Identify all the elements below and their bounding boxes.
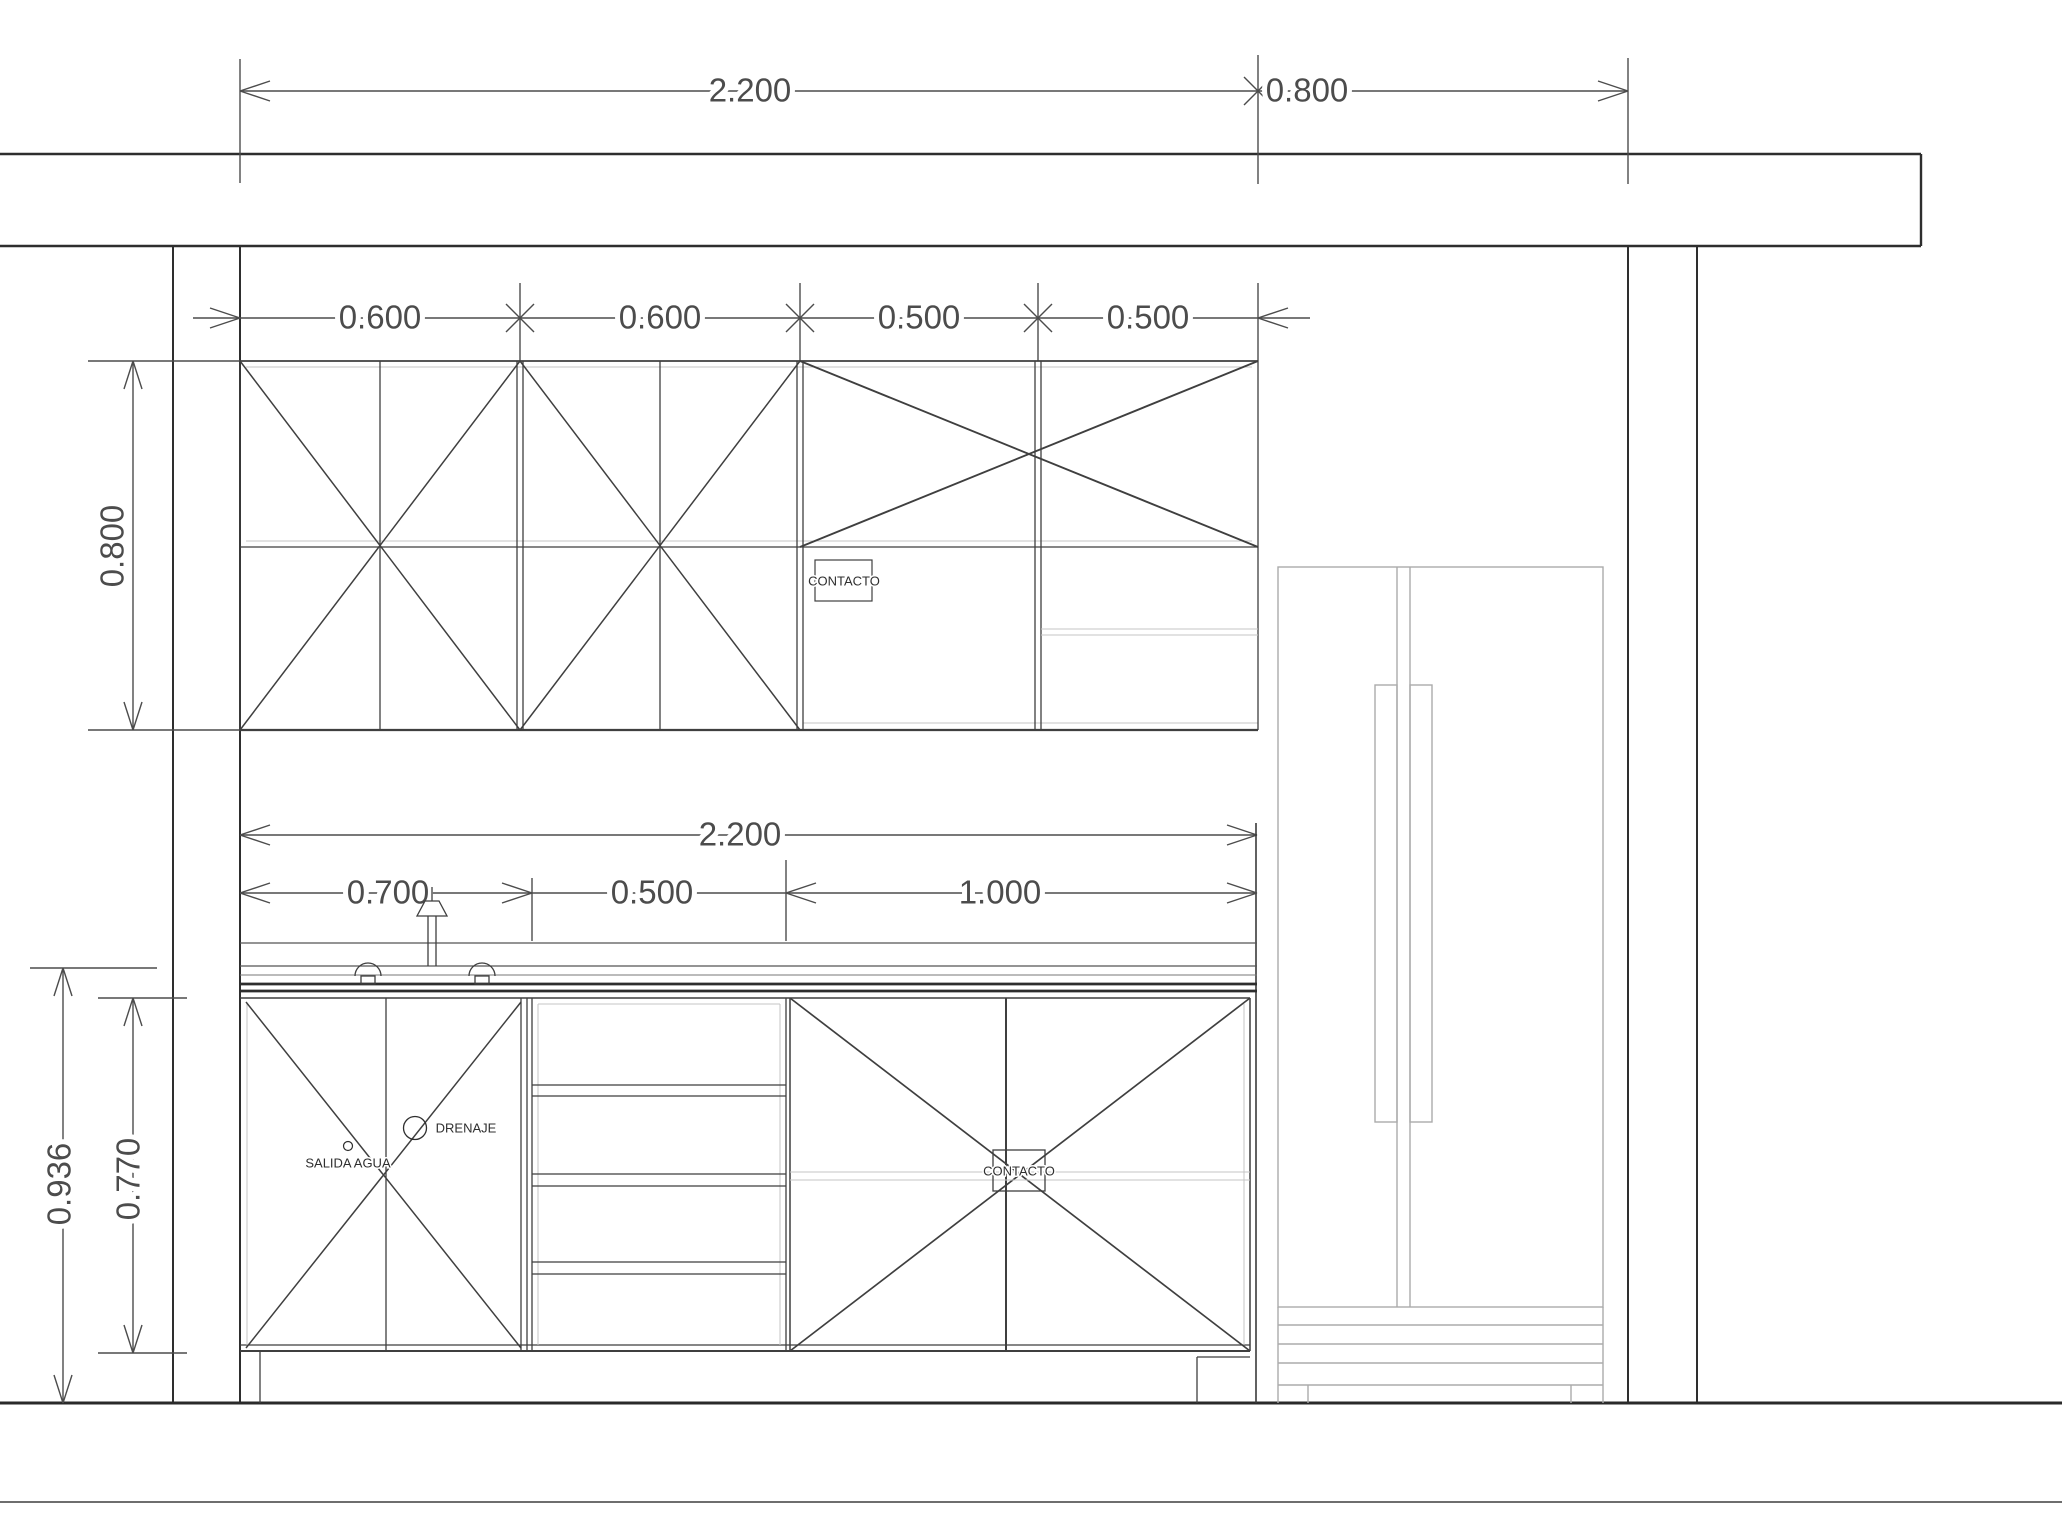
dim-upper-unit-1: 0.600	[339, 299, 422, 336]
dim-upper-unit-2: 0.600	[619, 299, 702, 336]
fridge-handle-right	[1410, 685, 1432, 1122]
toe-kick	[260, 1351, 1250, 1403]
base-cabinets: SALIDA AGUA DRENAJE	[240, 998, 1250, 1403]
countertop	[240, 943, 1257, 991]
dim-lower-units-row: 0.700 0.500 1.000	[240, 860, 1257, 941]
dim-mid-span-label: 2.200	[699, 816, 782, 853]
fridge-grille	[1278, 1307, 1603, 1403]
upper-outlet-label: CONTACTO	[808, 573, 880, 588]
refrigerator	[1278, 567, 1603, 1403]
left-wall	[173, 246, 240, 1403]
elevation-canvas: 2.200 0.800 0.600 0.600 0.500 0.500	[0, 0, 2062, 1540]
dim-counter-total-height-label: 0.936	[41, 1143, 78, 1226]
upper-outlet: CONTACTO	[808, 560, 880, 601]
water-supply-point-icon	[344, 1142, 353, 1151]
right-wall	[1628, 246, 1697, 1403]
dim-top-right-span: 0.800	[1266, 72, 1349, 109]
dim-lower-unit-1: 0.700	[347, 874, 430, 911]
dim-upper-height: 0.800	[88, 361, 240, 730]
dim-upper-unit-3: 0.500	[878, 299, 961, 336]
sink-cabinet: SALIDA AGUA DRENAJE	[246, 998, 527, 1351]
water-supply-label: SALIDA AGUA	[305, 1155, 391, 1170]
right-base-cabinet: CONTACTO	[790, 998, 1250, 1351]
dim-lower-unit-3: 1.000	[959, 874, 1042, 911]
dim-upper-cabinet-height: 0.800	[94, 505, 131, 588]
drawer-stack	[532, 998, 786, 1351]
dim-upper-units-row: 0.600 0.600 0.500 0.500	[193, 283, 1310, 361]
lower-outlet-label: CONTACTO	[983, 1163, 1055, 1178]
ceiling-beam	[0, 154, 1921, 246]
upper-cabinets: CONTACTO	[240, 361, 1258, 730]
drain-label: DRENAJE	[436, 1120, 497, 1135]
dim-upper-unit-4: 0.500	[1107, 299, 1190, 336]
elevation-drawing: 2.200 0.800 0.600 0.600 0.500 0.500	[0, 0, 2062, 1540]
dim-lower-unit-2: 0.500	[611, 874, 694, 911]
dim-top-chain: 2.200 0.800	[240, 55, 1628, 184]
fridge-handle-left	[1375, 685, 1397, 1122]
floor	[0, 1403, 2062, 1502]
upper-cabinet-door-x-right	[800, 361, 1258, 547]
dim-top-span: 2.200	[709, 72, 792, 109]
dim-base-cabinet-height-label: 0.770	[110, 1138, 147, 1221]
